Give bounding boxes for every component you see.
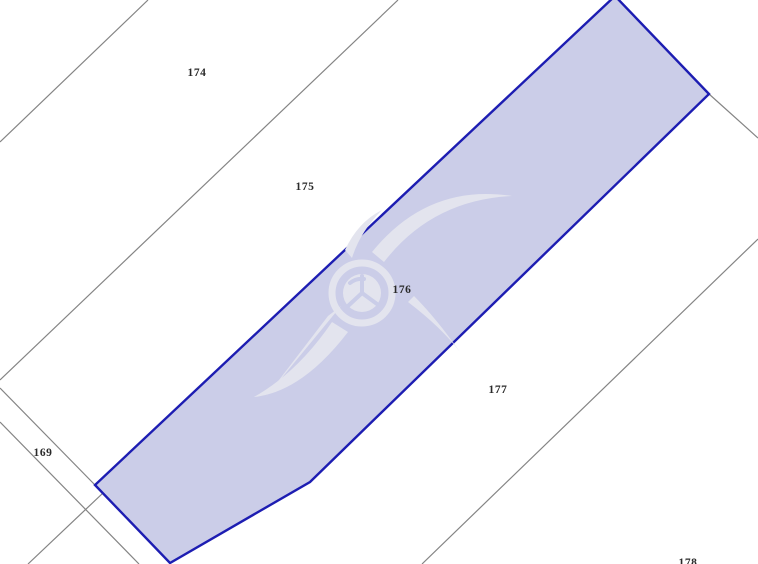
parcel-label-176: 176 [392,284,411,296]
highlighted-parcel-group [95,0,709,563]
highlighted-parcel-176[interactable] [95,0,709,563]
boundary-line [28,493,103,564]
map-canvas: 174 175 176 177 169 178 [0,0,758,564]
parcel-label-177: 177 [488,384,507,396]
parcel-label-169: 169 [33,447,52,459]
parcel-label-175: 175 [295,181,314,193]
boundary-line [709,94,758,138]
parcel-label-178: 178 [678,557,697,564]
parcel-label-174: 174 [187,67,206,79]
cadastral-map: 174 175 176 177 169 178 [0,0,758,564]
boundary-line [0,0,148,142]
